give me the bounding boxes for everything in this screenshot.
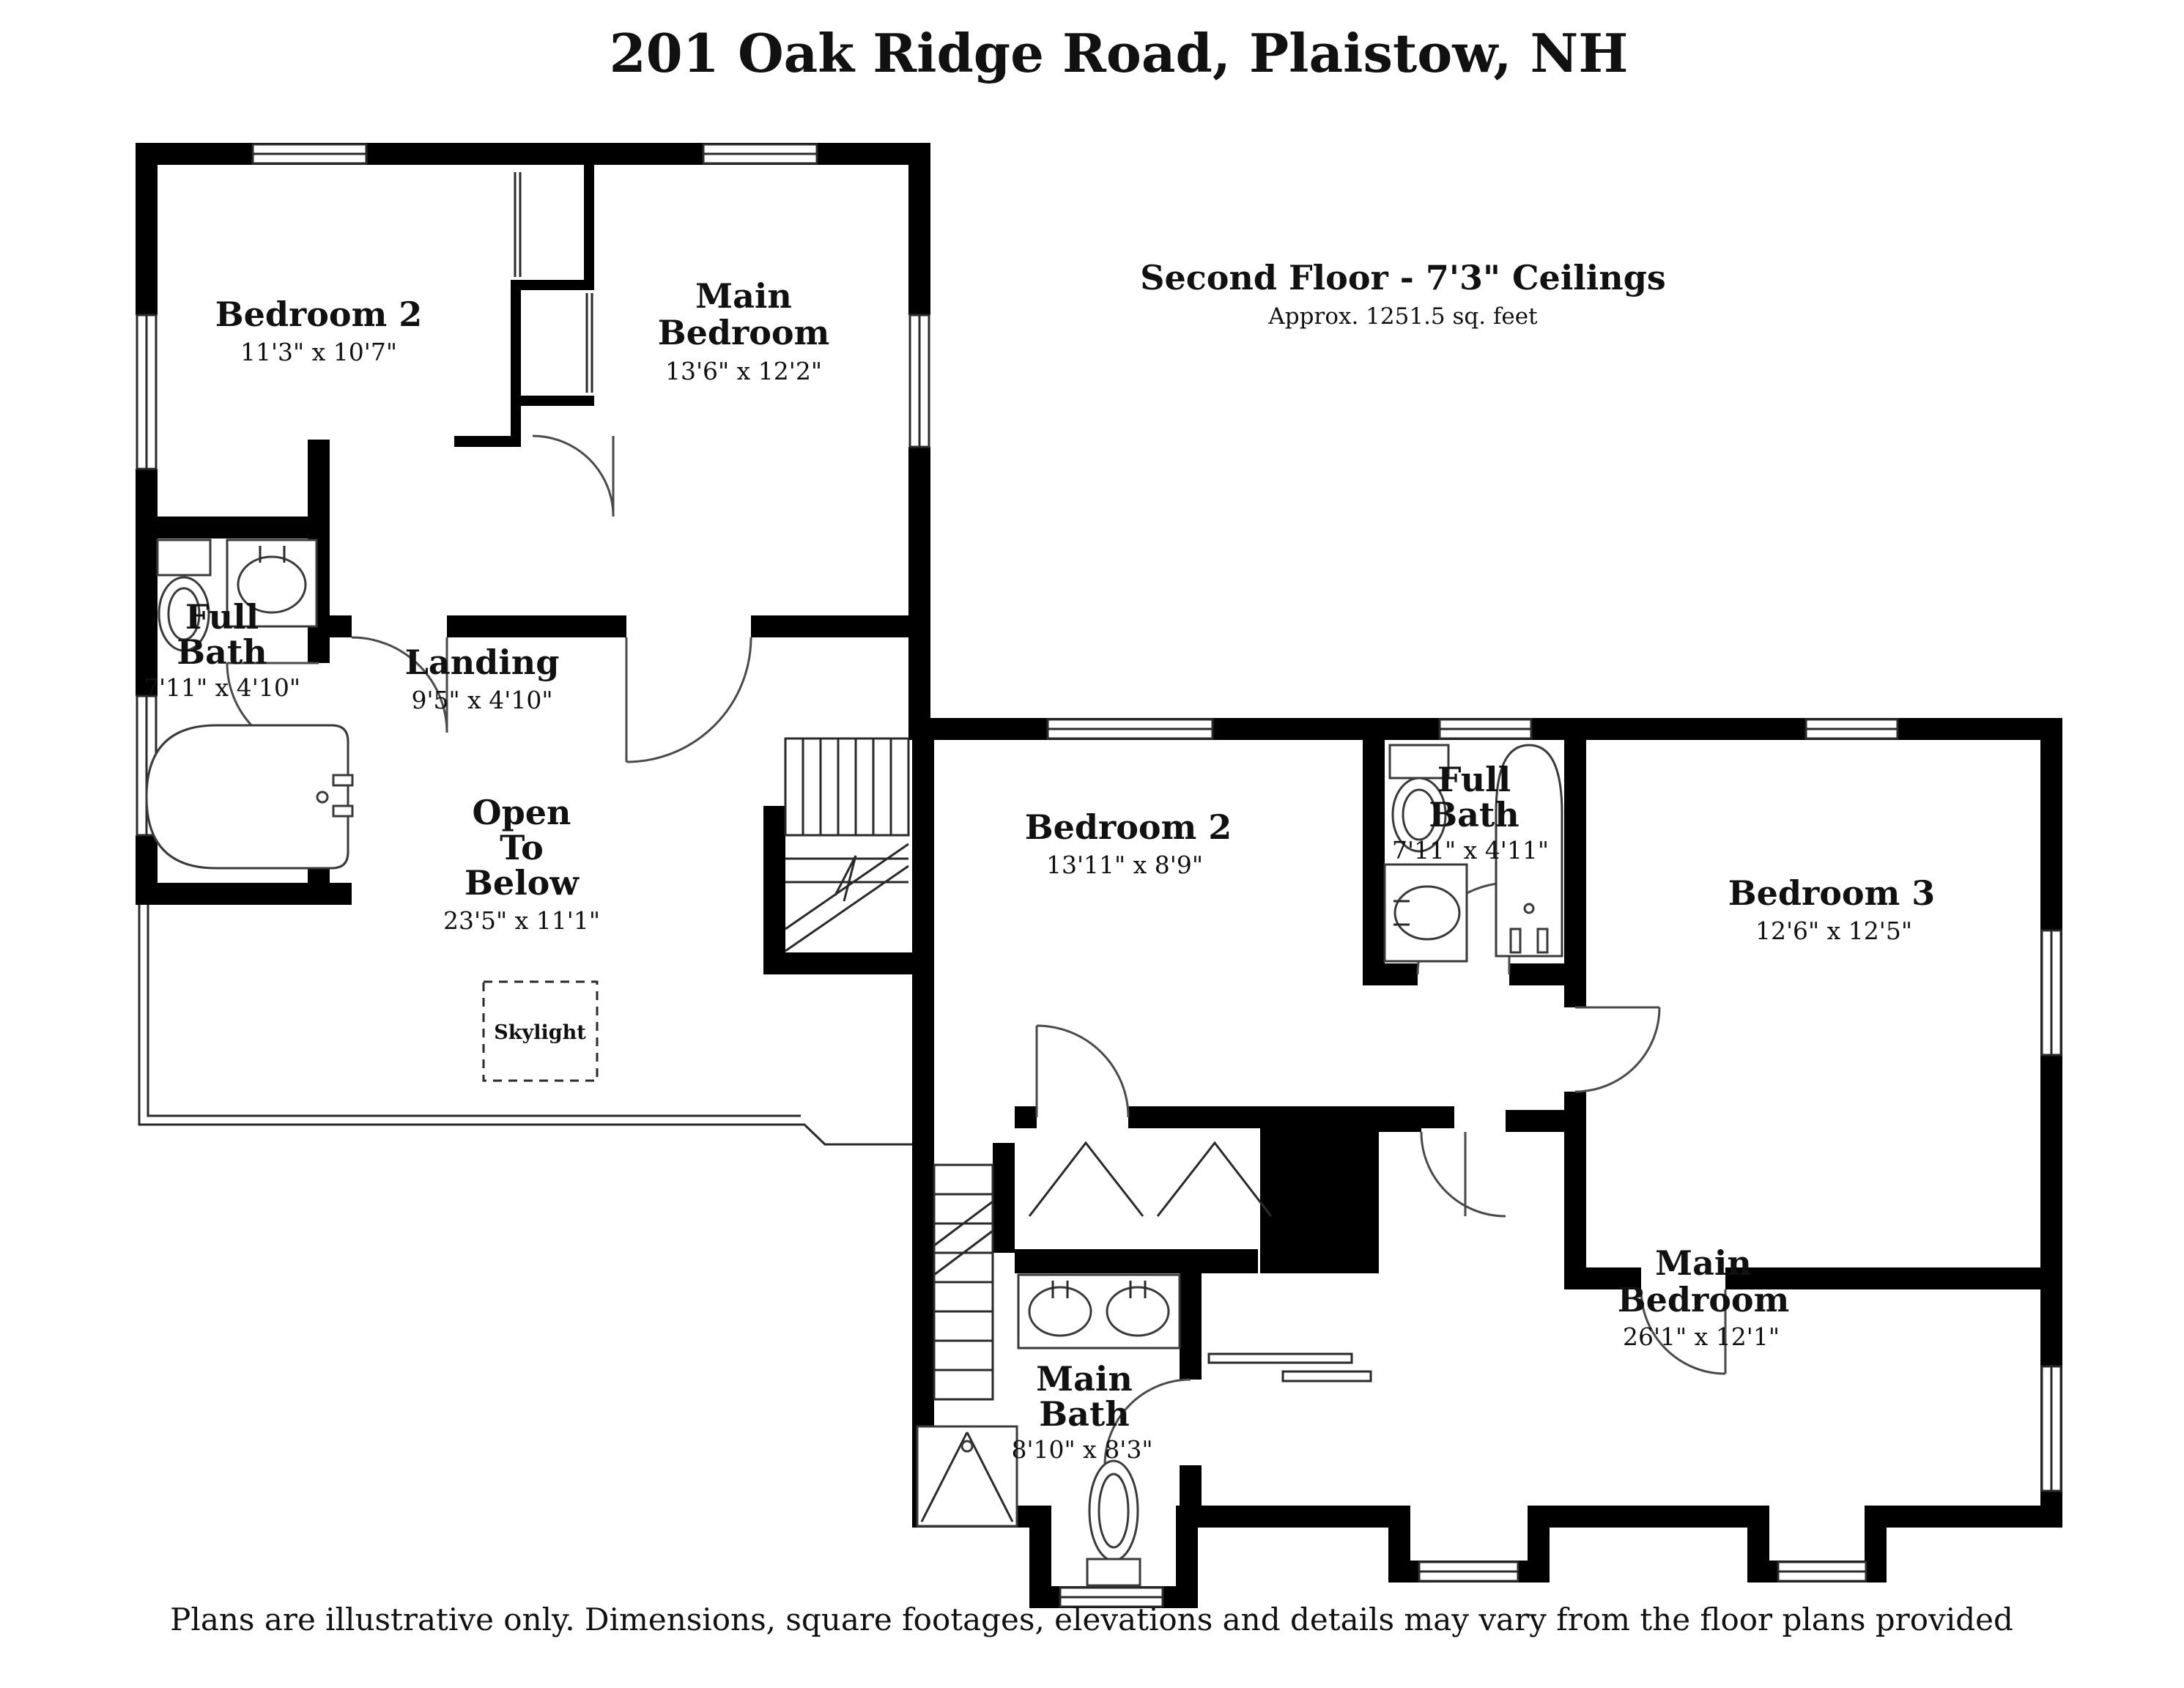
room-dims: 11'3" x 10'7" [240, 338, 397, 366]
door-bedroom2-lower [1037, 1026, 1128, 1117]
room-label-bedroom2-upper: Bedroom 2 11'3" x 10'7" [215, 295, 423, 366]
window-main-bedroom-upper-top [703, 144, 817, 163]
floor-subheading-text: Approx. 1251.5 sq. feet [1267, 303, 1538, 330]
room-name-line1: Full [185, 597, 259, 637]
chimney-block [1260, 1121, 1379, 1273]
room-name: Landing [405, 643, 560, 682]
room-name-line1: Main [1036, 1359, 1133, 1399]
window-full-bath-lower-top [1440, 719, 1531, 738]
room-label-main-bath: Main Bath 8'10" x 8'3" [1011, 1359, 1152, 1464]
window-main-bedroom-bay-2 [1778, 1562, 1866, 1581]
floor-heading-text: Second Floor - 7'3" Ceilings [1140, 258, 1666, 297]
room-name: Bedroom 2 [1025, 807, 1232, 847]
room-dims: 8'10" x 8'3" [1011, 1435, 1152, 1464]
room-name-line2: Bath [177, 632, 267, 672]
room-name-line2: Bedroom [658, 313, 830, 352]
skylight-label: Skylight [494, 1021, 586, 1044]
room-label-landing: Landing 9'5" x 4'10" [405, 643, 560, 714]
stairs-upper [785, 738, 908, 951]
room-label-bedroom2-lower: Bedroom 2 13'11" x 8'9" [1025, 807, 1232, 879]
room-dims: 13'11" x 8'9" [1046, 851, 1203, 879]
shower-main-bath [917, 1426, 1017, 1526]
sink-full-bath-lower [1385, 865, 1467, 961]
room-name-line3: Below [464, 863, 580, 903]
room-label-main-bedroom-lower: Main Bedroom 26'1" x 12'1" [1618, 1243, 1790, 1351]
room-label-open-to-below: Open To Below 23'5" x 11'1" [443, 793, 600, 935]
window-main-bedroom-bay-1 [1419, 1562, 1518, 1581]
room-name: Bedroom 2 [215, 295, 423, 334]
door-main-bedroom-lower-hall [1421, 1132, 1506, 1216]
door-main-bedroom-upper [626, 637, 751, 762]
floor-heading: Second Floor - 7'3" Ceilings Approx. 125… [1140, 258, 1666, 330]
window-bedroom2-upper-top [253, 144, 366, 163]
room-name-line2: Bath [1429, 795, 1519, 834]
window-main-bedroom-lower-right [2042, 1366, 2061, 1491]
room-dims: 13'6" x 12'2" [665, 357, 822, 385]
floor-plan-drawing: 201 Oak Ridge Road, Plaistow, NH Second … [0, 0, 2184, 1688]
room-dims: 26'1" x 12'1" [1623, 1322, 1780, 1351]
floor-plan-page: 201 Oak Ridge Road, Plaistow, NH Second … [0, 0, 2184, 1688]
toilet-main-bath [1087, 1461, 1140, 1585]
closet-shelves [1209, 1354, 1371, 1381]
window-bedroom2-upper-left [137, 315, 156, 469]
room-dims: 7'11" x 4'10" [144, 673, 300, 702]
room-name-line1: Main [1655, 1243, 1752, 1283]
window-bedroom2-lower-top [1048, 719, 1213, 738]
window-main-bedroom-upper-right [910, 315, 929, 447]
room-name-line1: Main [695, 276, 792, 316]
room-name: Bedroom 3 [1728, 873, 1936, 913]
door-closet-upper [515, 172, 613, 517]
closet-rod-chevrons [1029, 1143, 1271, 1216]
page-title: 201 Oak Ridge Road, Plaistow, NH [610, 22, 1629, 84]
door-bedroom3 [1575, 1007, 1659, 1092]
room-dims: 23'5" x 11'1" [443, 906, 600, 935]
room-dims: 7'11" x 4'11" [1392, 836, 1549, 865]
window-bedroom3-top [1806, 719, 1898, 738]
room-name-line2: To [500, 828, 544, 867]
disclaimer-footer: Plans are illustrative only. Dimensions,… [170, 1602, 2013, 1637]
room-name-line1: Open [473, 793, 571, 832]
window-bedroom3-right [2042, 930, 2061, 1055]
room-name-line1: Full [1437, 760, 1511, 799]
room-label-main-bedroom-upper: Main Bedroom 13'6" x 12'2" [658, 276, 830, 385]
bathtub-full-bath-upper [147, 725, 352, 868]
room-dims: 12'6" x 12'5" [1755, 917, 1912, 945]
room-dims: 9'5" x 4'10" [411, 686, 552, 714]
stairs-lower [934, 1165, 993, 1399]
room-name-line2: Bath [1039, 1394, 1129, 1434]
room-name-line2: Bedroom [1618, 1280, 1790, 1319]
vanity-main-bath [1018, 1275, 1180, 1348]
room-label-bedroom3: Bedroom 3 12'6" x 12'5" [1728, 873, 1936, 945]
